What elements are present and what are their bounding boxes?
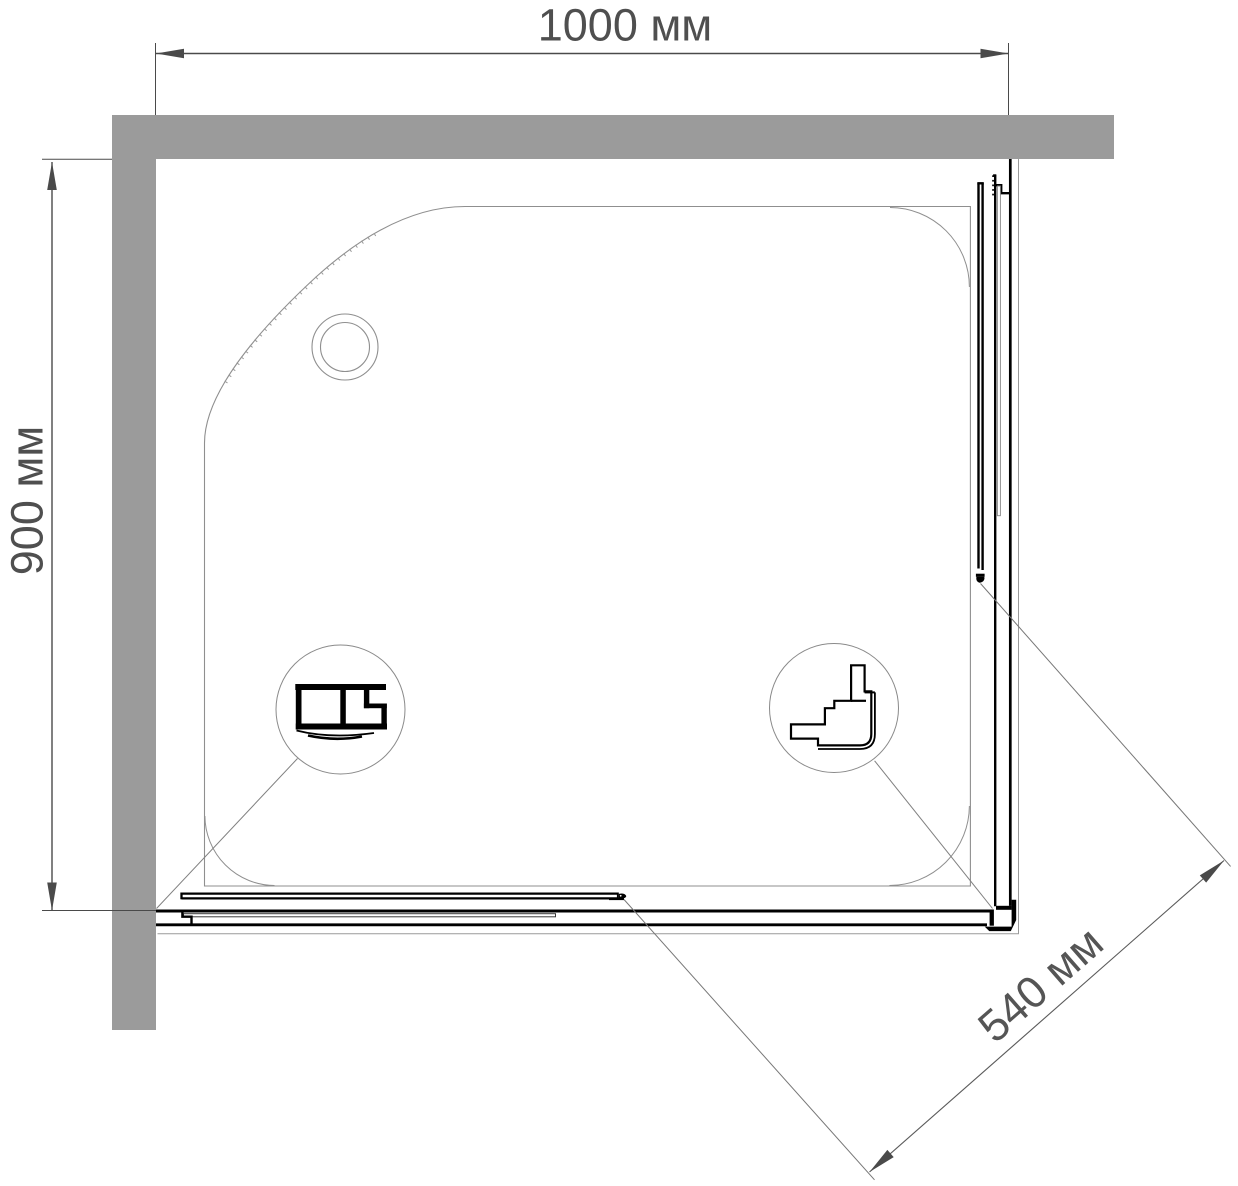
svg-text:1000 мм: 1000 мм (538, 0, 713, 50)
svg-text:900 мм: 900 мм (2, 426, 53, 575)
